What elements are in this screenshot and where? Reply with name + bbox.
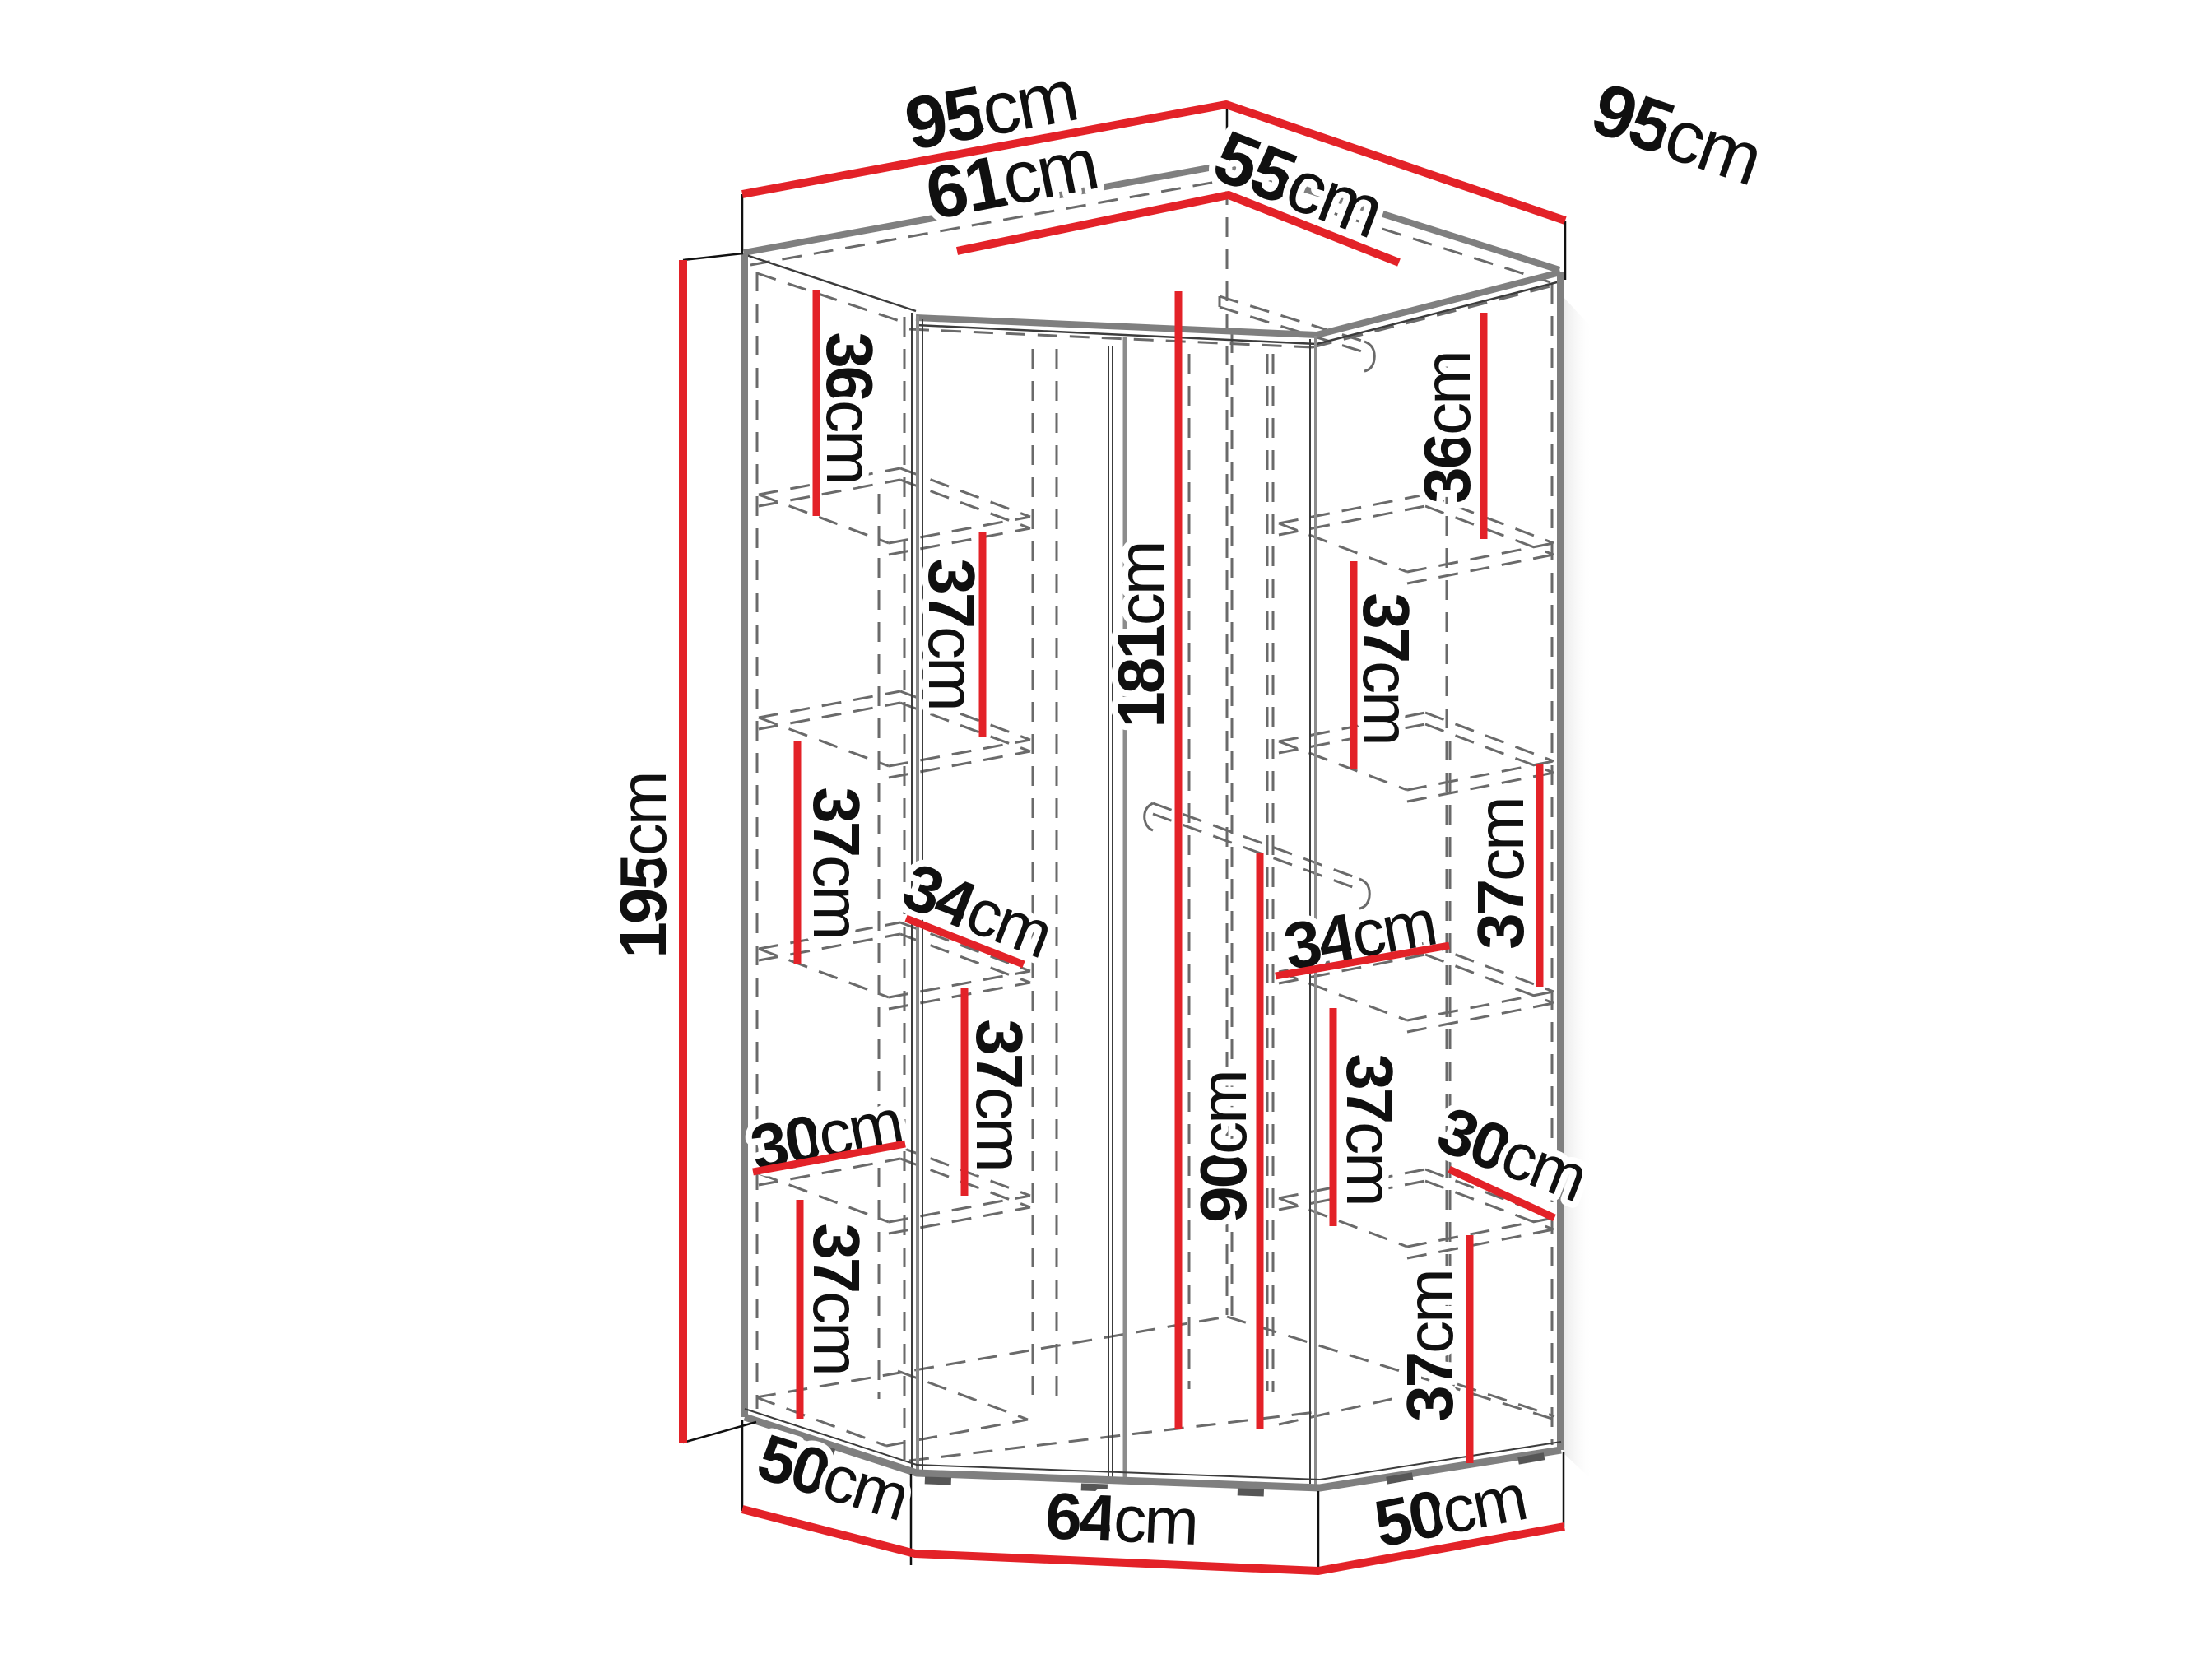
svg-text:37cm: 37cm [800, 1223, 873, 1374]
svg-text:37cm: 37cm [963, 1019, 1036, 1170]
svg-text:181cm: 181cm [1104, 542, 1178, 727]
svg-text:64cm: 64cm [1044, 1479, 1198, 1559]
svg-text:37cm: 37cm [1333, 1053, 1406, 1205]
svg-text:90cm: 90cm [1187, 1071, 1260, 1223]
svg-text:36cm: 36cm [1410, 352, 1484, 504]
svg-text:37cm: 37cm [915, 558, 988, 709]
svg-text:36cm: 36cm [813, 332, 886, 483]
svg-text:37cm: 37cm [1350, 592, 1423, 744]
svg-text:195cm: 195cm [606, 773, 680, 958]
svg-text:37cm: 37cm [1393, 1271, 1466, 1422]
svg-text:37cm: 37cm [1464, 798, 1537, 950]
svg-text:37cm: 37cm [800, 787, 873, 938]
